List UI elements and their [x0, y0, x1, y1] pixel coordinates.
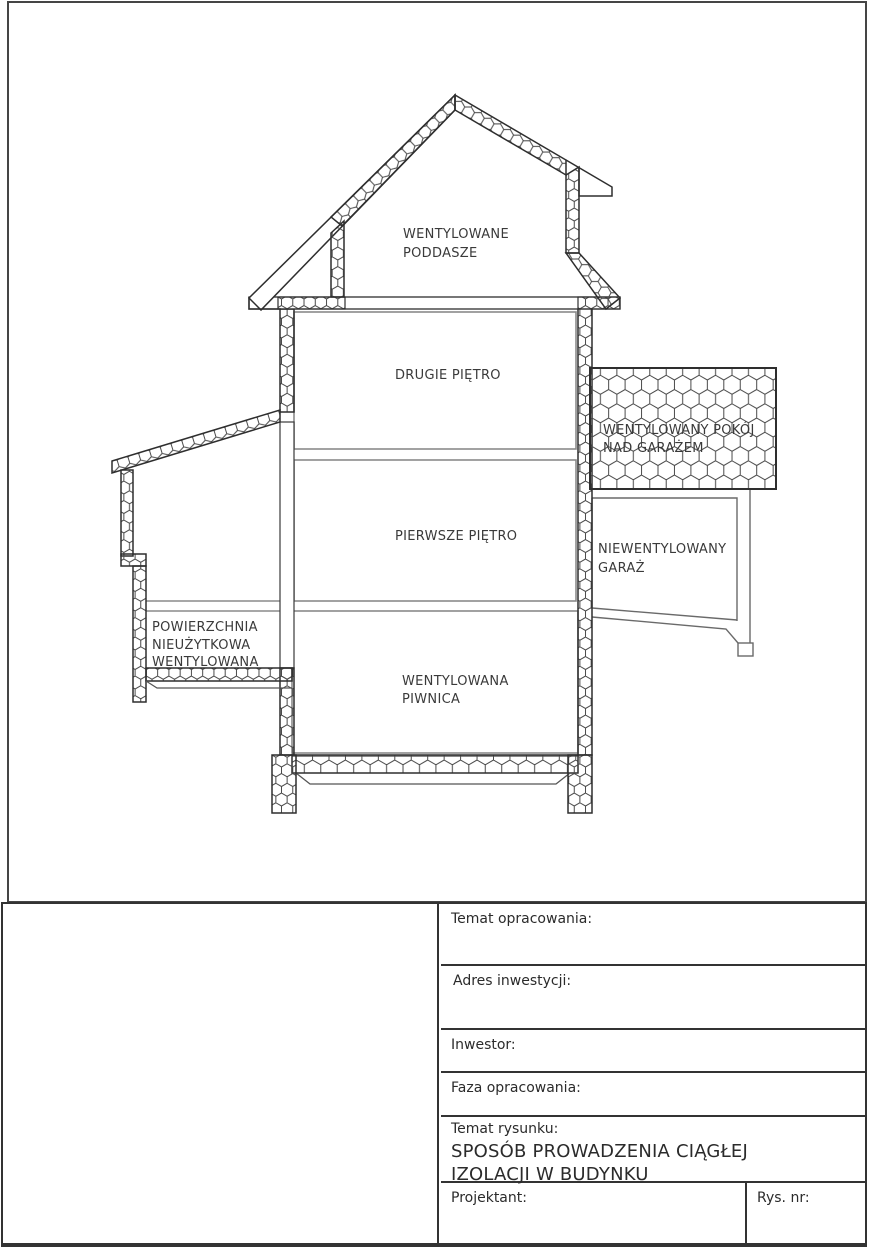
- adres-inwestycji-label: Adres inwestycji:: [453, 973, 571, 989]
- left-wall-insulated-upper: [280, 309, 294, 412]
- annex-wall-lower: [133, 566, 146, 702]
- rys-nr-label: Rys. nr:: [757, 1190, 810, 1206]
- room-over-garage-label-line1: WENTYLOWANY POKÓJ: [603, 422, 755, 438]
- temat-opracowania-label: Temat opracowania:: [451, 911, 592, 927]
- basement-floor-insulation: [292, 755, 578, 773]
- knee-wall-left: [331, 221, 344, 297]
- title-block-row-projektant: Projektant: Rys. nr:: [441, 1183, 865, 1243]
- faza-opracowania-label: Faza opracowania:: [451, 1080, 581, 1096]
- annex-wall-step: [121, 554, 146, 566]
- main-roof-insulation-left: [331, 95, 455, 226]
- drawing-sheet: WENTYLOWANE PODDASZE DRUGIE PIĘTRO PIERW…: [0, 0, 871, 1250]
- projektant-label: Projektant:: [451, 1190, 527, 1206]
- room-over-garage-label-line2: NAD GARAŻEM: [603, 440, 704, 456]
- building-section-figure: WENTYLOWANE PODDASZE DRUGIE PIĘTRO PIERW…: [0, 0, 871, 903]
- title-block: Temat opracowania: Adres inwestycji: Inw…: [1, 902, 867, 1247]
- annex-wall-upper: [121, 470, 133, 556]
- title-block-row-adres: Adres inwestycji:: [441, 966, 865, 1030]
- title-block-row-temat-rysunku: Temat rysunku: SPOSÓB PROWADZENIA CIĄGŁE…: [441, 1117, 865, 1183]
- footing-right: [568, 755, 592, 813]
- rys-nr-cell: Rys. nr:: [747, 1183, 865, 1243]
- unused-area-label-line1: POWIERZCHNIA: [152, 620, 258, 635]
- unused-area-label-line2: NIEUŻYTKOWA: [152, 637, 250, 653]
- garage-label-line2: GARAŻ: [598, 560, 645, 576]
- projektant-cell: Projektant:: [441, 1183, 747, 1243]
- footing-left: [272, 755, 296, 813]
- drawing-title-line1: SPOSÓB PROWADZENIA CIĄGŁEJ: [451, 1140, 855, 1163]
- temat-rysunku-label: Temat rysunku:: [451, 1121, 558, 1137]
- attic-label-line2: PODDASZE: [403, 246, 478, 261]
- annex-floor-underside: [146, 681, 292, 688]
- basement-label-line2: PIWNICA: [402, 692, 460, 707]
- drawing-title: SPOSÓB PROWADZENIA CIĄGŁEJ IZOLACJI W BU…: [451, 1140, 855, 1186]
- basement-label-line1: WENTYLOWANA: [402, 674, 509, 689]
- main-roof-insulation-right: [455, 95, 566, 175]
- unused-area-label-line3: WENTYLOWANA: [152, 655, 259, 670]
- garage-label-line1: NIEWENTYLOWANY: [598, 542, 726, 557]
- inwestor-label: Inwestor:: [451, 1037, 516, 1053]
- title-block-row-temat-opracowania: Temat opracowania:: [441, 904, 865, 966]
- attic-slab-insulation-left: [278, 297, 345, 309]
- left-wall-plain: [280, 422, 294, 668]
- knee-wall-right: [566, 167, 579, 253]
- attic-label-line1: WENTYLOWANE: [403, 227, 509, 242]
- foundation-underside: [296, 773, 570, 784]
- title-block-row-faza: Faza opracowania:: [441, 1073, 865, 1117]
- second-floor-label: DRUGIE PIĘTRO: [395, 368, 501, 383]
- title-block-logo-cell: [3, 904, 439, 1243]
- title-block-row-inwestor: Inwestor:: [441, 1030, 865, 1073]
- annex-roof-insulation: [112, 410, 280, 473]
- first-floor-label: PIERWSZE PIĘTRO: [395, 529, 517, 544]
